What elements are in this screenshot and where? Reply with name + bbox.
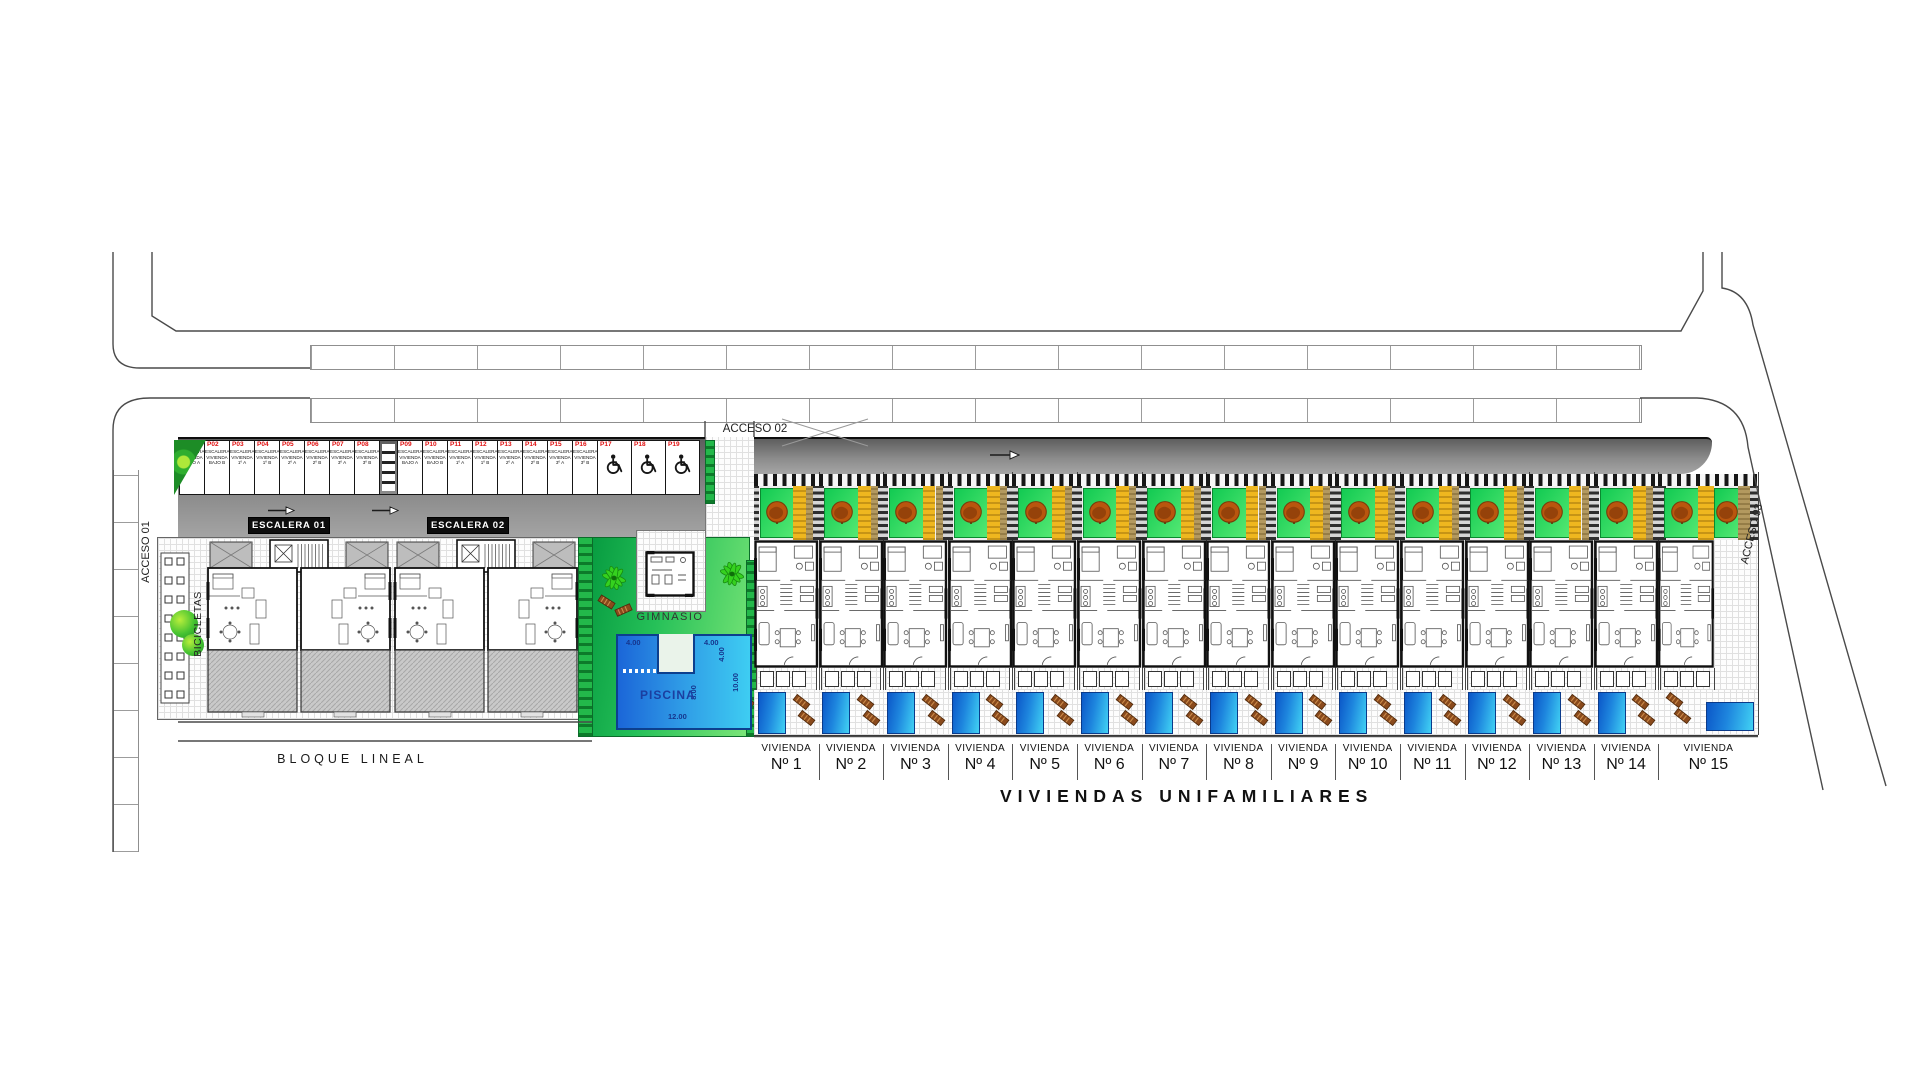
- private-pool: [1081, 692, 1109, 734]
- villa-label-word: VIVIENDA: [1206, 742, 1271, 755]
- villa-plot: [1271, 472, 1336, 735]
- sun-lounger: [1179, 694, 1197, 711]
- parking-stall: P10 ESCALERA 2 VIVIENDA BAJO B: [422, 440, 448, 495]
- pool-dim-right: 10.00: [731, 673, 740, 692]
- wheelchair-icon: [639, 453, 659, 475]
- sun-lounger: [1121, 710, 1139, 727]
- parking-stall: P11 ESCALERA 2 VIVIENDA 1º A: [447, 440, 473, 495]
- terrace: [1079, 668, 1140, 690]
- street-parking-west: [113, 470, 139, 852]
- sun-lounger: [1309, 694, 1327, 711]
- path-strip: [1000, 486, 1007, 540]
- sun-lounger: [1185, 710, 1203, 727]
- pool-label: PISCINA: [640, 688, 696, 702]
- villa-house-plan: [1206, 540, 1271, 668]
- villa-plot: [1529, 472, 1594, 735]
- private-pool: [1016, 692, 1044, 734]
- pool-notch: [657, 634, 695, 674]
- path-strip: [1388, 486, 1395, 540]
- label-divider: [1142, 744, 1143, 780]
- carport-strip: [1206, 486, 1211, 540]
- plan-title: VIVIENDAS UNIFAMILIARES: [1000, 786, 1360, 807]
- sun-lounger: [921, 694, 939, 711]
- driveway: [1116, 486, 1129, 540]
- tree-icon: [1410, 500, 1436, 526]
- private-pool: [1404, 692, 1432, 734]
- label-divider: [1271, 744, 1272, 780]
- label-divider: [1077, 744, 1078, 780]
- label-divider: [1658, 744, 1659, 780]
- bicycles-label: BICICLETAS: [192, 586, 204, 662]
- villa-label-word: VIVIENDA: [1465, 742, 1530, 755]
- villa-house-plan: [1271, 540, 1336, 668]
- front-garden: [1406, 488, 1441, 538]
- path-strip: [1646, 486, 1653, 540]
- villa-label-word: VIVIENDA: [883, 742, 948, 755]
- sun-lounger: [1444, 710, 1462, 727]
- villa-front-yard: [819, 486, 884, 540]
- villa-label: VIVIENDA Nº 7: [1142, 742, 1207, 782]
- path-strip: [871, 486, 878, 540]
- front-garden: [1277, 488, 1312, 538]
- villa-label-number: Nº 10: [1335, 755, 1400, 775]
- villa-house-plan: [1529, 540, 1594, 668]
- villa-house-plan: [1594, 540, 1659, 668]
- villa-house-plan: [1400, 540, 1465, 668]
- pool-dim-bottom: 12.00: [668, 712, 687, 721]
- back-garden: [1206, 690, 1271, 736]
- terrace: [1402, 668, 1463, 690]
- parking-stall: P04 ESCALERA 1 VIVIENDA 1º B: [254, 440, 280, 495]
- tree-icon: [1087, 500, 1113, 526]
- label-divider: [1529, 744, 1530, 780]
- terrace: [950, 668, 1011, 690]
- carport-strip: [1142, 486, 1147, 540]
- path-strip: [1065, 486, 1072, 540]
- back-garden: [1012, 690, 1077, 736]
- driveway: [1439, 486, 1452, 540]
- private-pool: [758, 692, 786, 734]
- villa-label: VIVIENDA Nº 3: [883, 742, 948, 782]
- gym-building: [645, 551, 695, 597]
- carport-strip: [1465, 486, 1470, 540]
- villa-label-number: Nº 14: [1594, 755, 1659, 775]
- side-yard: [1714, 540, 1758, 690]
- road-arrow: [990, 450, 1020, 460]
- villa-label-number: Nº 9: [1271, 755, 1336, 775]
- driveway: [1633, 486, 1646, 540]
- villa-label-word: VIVIENDA: [1142, 742, 1207, 755]
- back-garden: [1077, 690, 1142, 736]
- sun-lounger: [1438, 694, 1456, 711]
- driveway: [793, 486, 806, 540]
- parking-stall: P02 ESCALERA 1 VIVIENDA BAJO B: [204, 440, 230, 495]
- driveway: [1310, 486, 1323, 540]
- stall-line3: 3º A: [330, 460, 354, 466]
- pool-dim-top-right: 4.00: [704, 638, 719, 647]
- label-divider: [883, 744, 884, 780]
- apartment-cluster-1: [206, 538, 392, 718]
- villa-front-yard: [1271, 486, 1336, 540]
- parking-stall-row: P01 ESCALERA 1 VIVIENDA BAJO A P02 ESCAL…: [180, 440, 700, 495]
- back-garden: [819, 690, 884, 736]
- back-garden: [1400, 690, 1465, 736]
- carport-strip: [1271, 486, 1276, 540]
- access-02-label: ACCESO 02: [700, 423, 810, 435]
- sun-lounger: [927, 710, 945, 727]
- front-garden: [1470, 488, 1505, 538]
- stall-code: P19: [666, 441, 680, 449]
- stall-code: P07: [330, 441, 354, 449]
- back-garden: [1271, 690, 1336, 736]
- tree-icon: [764, 500, 790, 526]
- parking-stall: P13 ESCALERA 2 VIVIENDA 2º A: [497, 440, 523, 495]
- stall-line3: 2º B: [305, 460, 329, 466]
- villa-label: VIVIENDA Nº 2: [819, 742, 884, 782]
- stall-code: P08: [355, 441, 379, 449]
- villa-plot: [883, 472, 948, 735]
- sun-lounger: [992, 710, 1010, 727]
- wheelchair-icon: [605, 453, 625, 475]
- carport-strip: [1335, 486, 1340, 540]
- stair-bar-escalera-01: ESCALERA 01: [248, 517, 330, 534]
- private-pool: [1533, 692, 1561, 734]
- stall-line3: 3º A: [548, 460, 572, 466]
- block-label: BLOQUE LINEAL: [250, 752, 455, 766]
- villa-house-plan: [819, 540, 884, 668]
- path-strip: [936, 486, 943, 540]
- stall-line3: BAJO B: [205, 460, 229, 466]
- tree-icon: [1604, 500, 1630, 526]
- stall-code: P11: [448, 441, 472, 449]
- sun-lounger: [1373, 694, 1391, 711]
- villa-label-word: VIVIENDA: [1271, 742, 1336, 755]
- private-pool: [1275, 692, 1303, 734]
- driveway: [1052, 486, 1065, 540]
- stall-code: P06: [305, 441, 329, 449]
- villa-label-word: VIVIENDA: [1077, 742, 1142, 755]
- villa-front-yard: [1206, 486, 1271, 540]
- villa-front-yard: [1594, 486, 1659, 540]
- terrace: [756, 668, 817, 690]
- villa-label-number: Nº 8: [1206, 755, 1271, 775]
- sun-lounger: [1638, 710, 1656, 727]
- sun-lounger: [1250, 710, 1268, 727]
- villa-label-word: VIVIENDA: [819, 742, 884, 755]
- back-garden: [1529, 690, 1594, 736]
- parking-stall: P07 ESCALERA 1 VIVIENDA 3º A: [329, 440, 355, 495]
- carport-strip: [883, 486, 888, 540]
- stall-line3: 2º B: [523, 460, 547, 466]
- street-parking-north-row2: [310, 398, 1642, 423]
- villa-label-number: Nº 13: [1529, 755, 1594, 775]
- stall-line3: 1º B: [473, 460, 497, 466]
- villa-label-word: VIVIENDA: [948, 742, 1013, 755]
- villa-label: VIVIENDA Nº 11: [1400, 742, 1465, 782]
- label-divider: [948, 744, 949, 780]
- back-garden: [1658, 690, 1758, 736]
- carport-strip: [1594, 486, 1599, 540]
- sun-lounger: [1050, 694, 1068, 711]
- terrace: [1531, 668, 1592, 690]
- villa-plot: [1012, 472, 1077, 735]
- stall-code: P17: [598, 441, 612, 449]
- stall-code: P13: [498, 441, 522, 449]
- villa-plot: [948, 472, 1013, 735]
- stall-line3: 3º B: [355, 460, 379, 466]
- villa-plot: [1658, 472, 1758, 735]
- pool-dim-top-left: 4.00: [626, 638, 641, 647]
- back-garden: [883, 690, 948, 736]
- pool-dim-notch: 4.00: [717, 647, 726, 662]
- private-pool: [1468, 692, 1496, 734]
- villa-front-yard: [883, 486, 948, 540]
- villa-label: VIVIENDA Nº 5: [1012, 742, 1077, 782]
- parking-stall: P14 ESCALERA 2 VIVIENDA 2º B: [522, 440, 548, 495]
- parking-stall: P17: [597, 440, 632, 495]
- driveway: [987, 486, 1000, 540]
- path-strip: [1582, 486, 1589, 540]
- front-garden: [1535, 488, 1570, 538]
- private-pool: [1706, 702, 1754, 731]
- driveway: [923, 486, 936, 540]
- carport-strip: [1077, 486, 1082, 540]
- villa-plot: [1142, 472, 1207, 735]
- driveway: [1504, 486, 1517, 540]
- terrace: [1467, 668, 1528, 690]
- palm-tree: [716, 558, 748, 590]
- driveway: [1375, 486, 1388, 540]
- parking-stall: P12 ESCALERA 2 VIVIENDA 1º B: [472, 440, 498, 495]
- parking-stall: P18: [631, 440, 666, 495]
- villa-label-word: VIVIENDA: [1012, 742, 1077, 755]
- driveway: [858, 486, 871, 540]
- tree-icon: [1023, 500, 1049, 526]
- stall-code: P03: [230, 441, 254, 449]
- gym-label: GIMNASIO: [630, 611, 710, 623]
- villa-plot: [1594, 472, 1659, 735]
- back-garden: [1335, 690, 1400, 736]
- villa-label-number: Nº 11: [1400, 755, 1465, 775]
- stall-line3: 2º A: [280, 460, 304, 466]
- villa-house-plan: [883, 540, 948, 668]
- parking-stall: P08 ESCALERA 1 VIVIENDA 3º B: [354, 440, 380, 495]
- parking-stall: P09 ESCALERA 2 VIVIENDA BAJO A: [397, 440, 423, 495]
- tree-icon: [1152, 500, 1178, 526]
- driveway: [1181, 486, 1194, 540]
- villa-house-plan: [1077, 540, 1142, 668]
- stall-code: P02: [205, 441, 229, 449]
- stall-line3: 3º B: [573, 460, 597, 466]
- terrace: [885, 668, 946, 690]
- villa-front-yard: [1529, 486, 1594, 540]
- terrace: [1596, 668, 1657, 690]
- drive-arrow-1: [268, 506, 295, 515]
- sun-lounger: [798, 710, 816, 727]
- front-garden: [760, 488, 795, 538]
- stall-line3: BAJO A: [398, 460, 422, 466]
- tree-icon: [1714, 500, 1740, 526]
- villa-label: VIVIENDA Nº 4: [948, 742, 1013, 782]
- carport-strip: [1400, 486, 1405, 540]
- carport-strip: [754, 486, 759, 540]
- stall-line3: 2º A: [498, 460, 522, 466]
- back-garden: [754, 690, 819, 736]
- villa-front-yard: [1400, 486, 1465, 540]
- label-divider: [1335, 744, 1336, 780]
- villa-label: VIVIENDA Nº 8: [1206, 742, 1271, 782]
- label-divider: [1012, 744, 1013, 780]
- villa-label-word: VIVIENDA: [1529, 742, 1594, 755]
- parking-stall: P19: [665, 440, 700, 495]
- apartment-cluster-2: [393, 538, 579, 718]
- stall-code: P12: [473, 441, 497, 449]
- carport-strip: [1012, 486, 1017, 540]
- driveway: [1698, 486, 1714, 540]
- stall-line3: 1º A: [230, 460, 254, 466]
- tree-icon: [1346, 500, 1372, 526]
- villas-road: [754, 437, 1712, 474]
- villa-front-yard: [1077, 486, 1142, 540]
- parking-stall: P15 ESCALERA 2 VIVIENDA 3º A: [547, 440, 573, 495]
- drive-arrow-2: [372, 506, 399, 515]
- stall-code: P09: [398, 441, 422, 449]
- villa-front-yard: [1465, 486, 1530, 540]
- front-garden-2: [1714, 488, 1740, 538]
- stall-code: P04: [255, 441, 279, 449]
- villa-label-number: Nº 1: [754, 755, 819, 775]
- tree-icon: [1216, 500, 1242, 526]
- villa-front-yard: [1335, 486, 1400, 540]
- villa-plot: [819, 472, 884, 735]
- path-strip: [1517, 486, 1524, 540]
- front-garden: [954, 488, 989, 538]
- sun-lounger: [1379, 710, 1397, 727]
- villa-house-plan: [1465, 540, 1530, 668]
- stall-line3: 1º A: [448, 460, 472, 466]
- villa-label: VIVIENDA Nº 15: [1658, 742, 1758, 782]
- tree-icon: [829, 500, 855, 526]
- parking-stall: P03 ESCALERA 1 VIVIENDA 1º A: [229, 440, 255, 495]
- villa-label: VIVIENDA Nº 14: [1594, 742, 1659, 782]
- terrace: [1014, 668, 1075, 690]
- tree-icon: [1281, 500, 1307, 526]
- sun-lounger: [1115, 694, 1133, 711]
- carport-strip: [948, 486, 953, 540]
- villa-label: VIVIENDA Nº 12: [1465, 742, 1530, 782]
- front-garden: [1212, 488, 1247, 538]
- stall-code: P14: [523, 441, 547, 449]
- villa-house-plan: [754, 540, 819, 668]
- sun-lounger: [1674, 708, 1692, 725]
- sun-lounger: [1632, 694, 1650, 711]
- path-strip: [1194, 486, 1201, 540]
- path-strip: [1129, 486, 1136, 540]
- villa-label-number: Nº 7: [1142, 755, 1207, 775]
- villa-house-plan: [1012, 540, 1077, 668]
- villa-label-number: Nº 2: [819, 755, 884, 775]
- stair-bar-escalera-02: ESCALERA 02: [427, 517, 509, 534]
- front-garden: [1147, 488, 1182, 538]
- tree-icon: [1539, 500, 1565, 526]
- sun-lounger: [862, 710, 880, 727]
- sun-lounger: [1508, 710, 1526, 727]
- private-pool: [822, 692, 850, 734]
- front-garden: [1341, 488, 1376, 538]
- villa-plot: [1335, 472, 1400, 735]
- tree-icon: [1669, 500, 1695, 526]
- stall-line3: BAJO B: [423, 460, 447, 466]
- sun-lounger: [1666, 692, 1684, 709]
- street-parking-north-row1: [310, 345, 1642, 370]
- label-divider: [1465, 744, 1466, 780]
- sun-lounger: [1567, 694, 1585, 711]
- villa-label-word: VIVIENDA: [1658, 742, 1758, 755]
- villa-house-plan: [1142, 540, 1207, 668]
- sun-lounger: [1573, 710, 1591, 727]
- label-divider: [1206, 744, 1207, 780]
- villa-front-yard: [754, 486, 819, 540]
- villa-label: VIVIENDA Nº 13: [1529, 742, 1594, 782]
- villa-front-yard: [1658, 486, 1758, 540]
- stall-code: P05: [280, 441, 304, 449]
- villa-label-number: Nº 5: [1012, 755, 1077, 775]
- label-divider: [1400, 744, 1401, 780]
- path-strip: [1452, 486, 1459, 540]
- private-pool: [887, 692, 915, 734]
- villa-label-number: Nº 12: [1465, 755, 1530, 775]
- sun-lounger: [856, 694, 874, 711]
- terrace: [821, 668, 882, 690]
- villa-front-yard: [1142, 486, 1207, 540]
- site-plan: P01 ESCALERA 1 VIVIENDA BAJO A P02 ESCAL…: [0, 0, 1920, 1080]
- villa-label: VIVIENDA Nº 6: [1077, 742, 1142, 782]
- stall-code: P16: [573, 441, 597, 449]
- terrace: [1660, 668, 1715, 690]
- back-garden: [948, 690, 1013, 736]
- front-garden: [1600, 488, 1635, 538]
- path-strip: [1323, 486, 1330, 540]
- carport-strip: [819, 486, 824, 540]
- label-divider: [819, 744, 820, 780]
- villa-label-number: Nº 4: [948, 755, 1013, 775]
- villa-plot: [1465, 472, 1530, 735]
- front-garden: [889, 488, 924, 538]
- villa-label-number: Nº 6: [1077, 755, 1142, 775]
- villa-house-plan: [1658, 540, 1714, 668]
- sun-lounger: [1056, 710, 1074, 727]
- stair-core-marker: [379, 440, 398, 495]
- villa-front-yard: [1012, 486, 1077, 540]
- tree-icon: [958, 500, 984, 526]
- stall-code: P15: [548, 441, 572, 449]
- villa-label: VIVIENDA Nº 10: [1335, 742, 1400, 782]
- private-pool: [1145, 692, 1173, 734]
- villa-plot: [754, 472, 819, 735]
- terrace: [1208, 668, 1269, 690]
- terrace: [1337, 668, 1398, 690]
- front-garden: [1083, 488, 1118, 538]
- villa-label: VIVIENDA Nº 1: [754, 742, 819, 782]
- private-pool: [952, 692, 980, 734]
- wheelchair-icon: [673, 453, 693, 475]
- path-strip: [1259, 486, 1266, 540]
- private-pool: [1210, 692, 1238, 734]
- stall-code: P10: [423, 441, 447, 449]
- villa-house-plan: [948, 540, 1013, 668]
- stall-code: P18: [632, 441, 646, 449]
- terrace: [1273, 668, 1334, 690]
